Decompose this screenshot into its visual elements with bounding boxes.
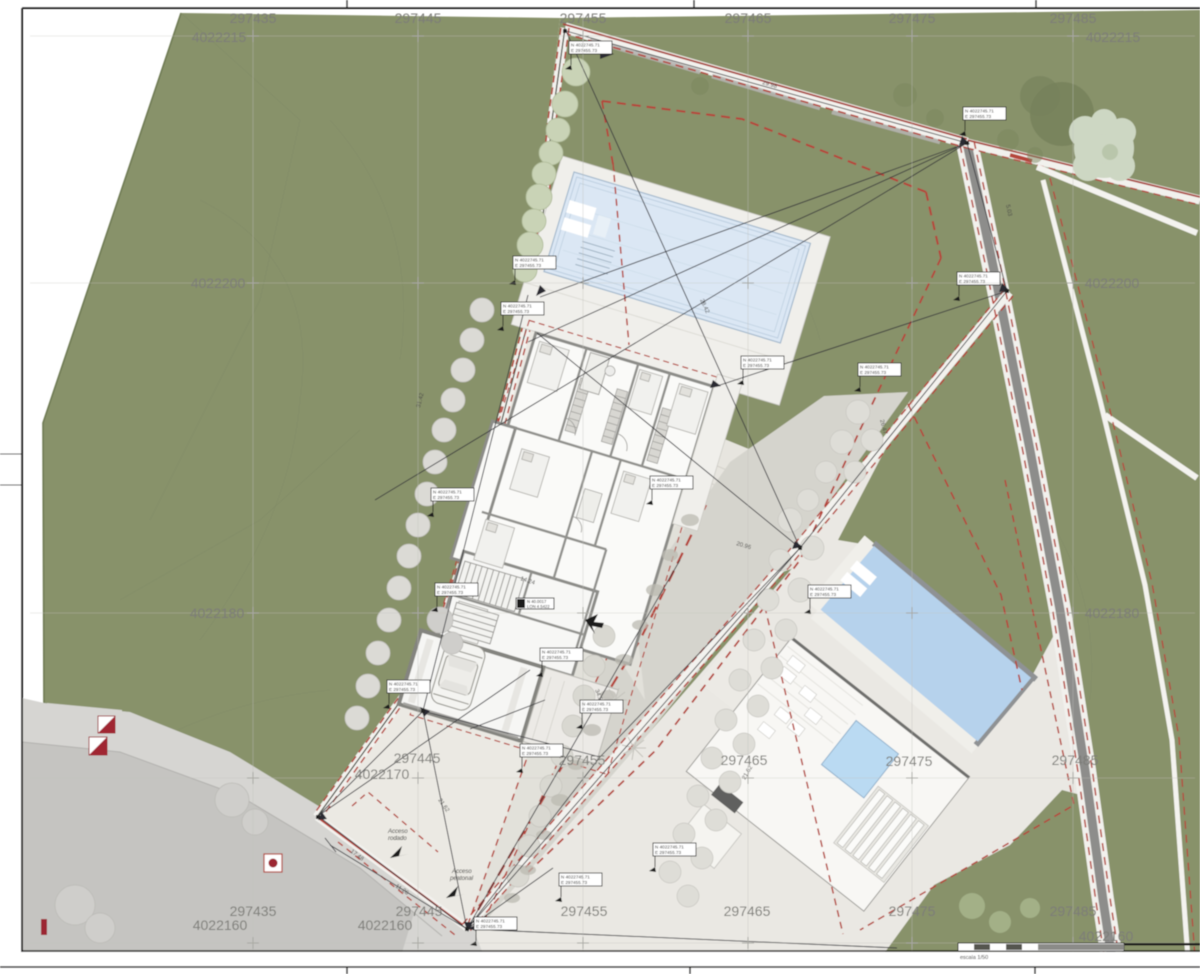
svg-text:297435: 297435 xyxy=(230,10,277,26)
svg-text:peatonal: peatonal xyxy=(449,876,474,882)
svg-text:Acceso: Acceso xyxy=(451,869,472,875)
svg-text:297455: 297455 xyxy=(559,752,606,768)
svg-text:297465: 297465 xyxy=(724,903,771,919)
svg-text:4022200: 4022200 xyxy=(191,275,246,291)
svg-text:escala 1/50: escala 1/50 xyxy=(960,955,988,961)
svg-text:4022180: 4022180 xyxy=(190,605,245,621)
svg-text:297455: 297455 xyxy=(560,10,607,26)
svg-text:297475: 297475 xyxy=(889,10,936,26)
svg-text:4022170: 4022170 xyxy=(355,766,410,782)
svg-text:4022215: 4022215 xyxy=(1086,29,1141,45)
svg-text:4022160: 4022160 xyxy=(1079,928,1134,944)
svg-text:297445: 297445 xyxy=(394,750,441,766)
svg-text:297475: 297475 xyxy=(886,753,933,769)
svg-text:297455: 297455 xyxy=(561,903,608,919)
svg-text:297465: 297465 xyxy=(725,10,772,26)
svg-text:4022215: 4022215 xyxy=(192,29,247,45)
svg-text:4022160: 4022160 xyxy=(358,917,413,933)
svg-text:297485: 297485 xyxy=(1050,903,1097,919)
svg-text:LON 4.5422: LON 4.5422 xyxy=(527,604,550,609)
svg-text:297485: 297485 xyxy=(1050,10,1097,26)
svg-text:297465: 297465 xyxy=(721,752,768,768)
svg-text:297445: 297445 xyxy=(395,10,442,26)
svg-text:297485: 297485 xyxy=(1052,752,1099,768)
svg-text:4022200: 4022200 xyxy=(1085,275,1140,291)
svg-text:rodado: rodado xyxy=(388,836,407,842)
svg-text:4022180: 4022180 xyxy=(1085,605,1140,621)
svg-text:4022160: 4022160 xyxy=(193,917,248,933)
svg-text:297475: 297475 xyxy=(889,903,936,919)
svg-text:Acceso: Acceso xyxy=(387,829,408,835)
